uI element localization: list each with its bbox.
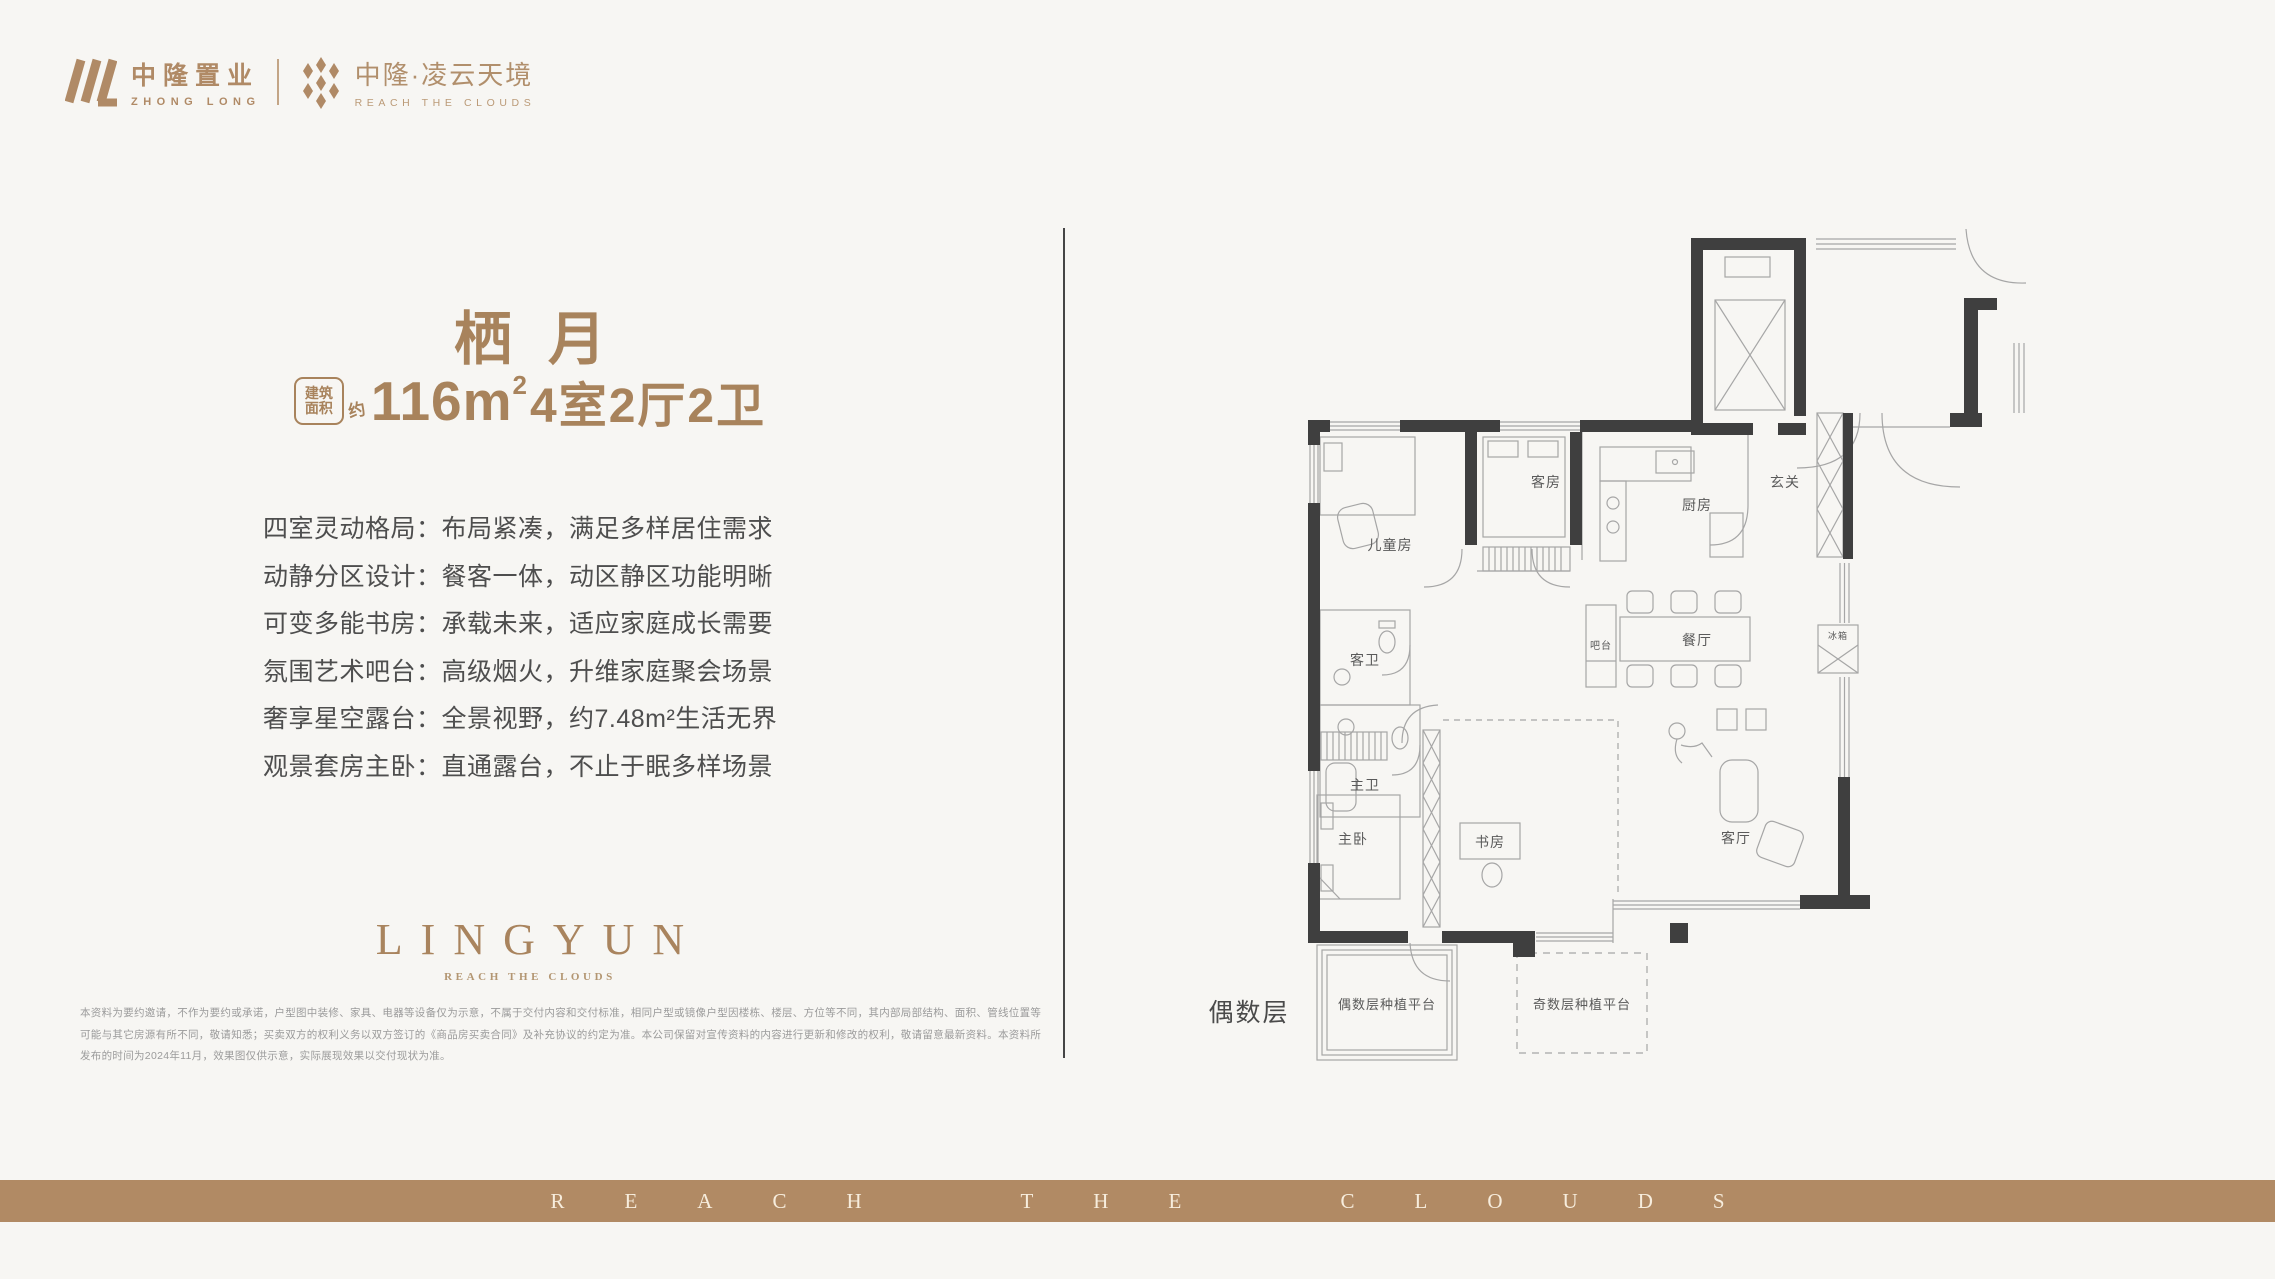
feature-line: 可变多能书房：承载未来，适应家庭成长需要	[263, 601, 823, 649]
area-badge-line2: 面积	[305, 401, 333, 416]
room-label-childrens-room: 儿童房	[1368, 537, 1413, 553]
room-label-living-room: 客厅	[1721, 830, 1751, 846]
zhonglong-logo-icon	[65, 56, 117, 108]
area-number: 116m2	[371, 369, 528, 433]
footer-banner-text: REACH THE CLOUDS	[490, 1189, 1784, 1214]
lingyun-tagline: REACH THE CLOUDS	[0, 971, 1060, 983]
feature-line: 奢享星空露台：全景视野，约7.48m²生活无界	[263, 696, 823, 744]
disclaimer-line: 可能与其它房源有所不同，敬请知悉；买卖双方的权利义务以双方签订的《商品房买卖合同…	[80, 1025, 1010, 1047]
floorplan-lines	[1310, 229, 2026, 1060]
footer-banner: REACH THE CLOUDS	[0, 1180, 2275, 1222]
disclaimer-line: 发布的时间为2024年11月，效果图仅供示意，实际展现效果以交付现状为准。	[80, 1046, 1010, 1068]
room-label-study: 书房	[1475, 834, 1505, 850]
feature-line: 氛围艺术吧台：高级烟火，升维家庭聚会场景	[263, 649, 823, 697]
feature-line: 观景套房主卧：直通露台，不止于眠多样场景	[263, 744, 823, 792]
header: 中隆置业 ZHONG LONG 中隆·凌云天境 REACH THE CLOUDS	[65, 52, 535, 112]
project-logo-icon	[301, 55, 341, 109]
header-divider	[277, 59, 279, 105]
brand-name-cn: 中隆置业	[131, 56, 261, 92]
disclaimer: 本资料为要约邀请，不作为要约或承诺，户型图中装修、家具、电器等设备仅为示意，不属…	[80, 1003, 1010, 1068]
room-label-guest-room: 客房	[1531, 474, 1561, 490]
project-name-cn: 中隆·凌云天境	[355, 55, 536, 92]
brand-name-en: ZHONG LONG	[131, 96, 261, 108]
area-approx-label: 约	[345, 394, 367, 422]
room-label-fridge: 冰箱	[1828, 630, 1848, 641]
label-odd-floor-platform: 奇数层种植平台	[1533, 997, 1631, 1012]
floorplan-drawing: 儿童房 客房 客卫 主卫 厨房 玄关 餐厅 吧台 冰箱 主卧 书房 客厅 偶数层…	[1180, 215, 2040, 1075]
unit-layout-text: 4室2厅2卫	[530, 366, 766, 436]
room-label-master-bath: 主卫	[1350, 777, 1380, 793]
unit-area-row: 建筑 面积 约 116m2 4室2厅2卫	[0, 366, 1060, 436]
label-even-floor-note: 偶数层	[1208, 999, 1289, 1027]
unit-name-title: 栖月	[0, 292, 1060, 376]
room-label-bar: 吧台	[1590, 639, 1612, 652]
area-badge-line1: 建筑	[305, 386, 333, 401]
room-label-master-bedroom: 主卧	[1338, 831, 1368, 847]
label-even-floor-platform: 偶数层种植平台	[1338, 997, 1436, 1012]
room-label-guest-bath: 客卫	[1350, 652, 1380, 668]
area-superscript: 2	[513, 370, 528, 400]
brand-block: 中隆置业 ZHONG LONG	[131, 56, 261, 108]
project-block: 中隆·凌云天境 REACH THE CLOUDS	[355, 55, 536, 109]
lingyun-wordmark: LINGYUN	[0, 914, 1060, 965]
vertical-divider	[1063, 228, 1065, 1058]
feature-line: 动静分区设计：餐客一体，动区静区功能明晰	[263, 554, 823, 602]
feature-list: 四室灵动格局：布局紧凑，满足多样居住需求 动静分区设计：餐客一体，动区静区功能明…	[263, 506, 823, 791]
page: 中隆置业 ZHONG LONG 中隆·凌云天境 REACH THE CLOUDS…	[0, 0, 2275, 1279]
room-label-dining: 餐厅	[1682, 632, 1712, 648]
lingyun-logo-block: LINGYUN REACH THE CLOUDS	[0, 914, 1060, 983]
project-name-en: REACH THE CLOUDS	[355, 97, 536, 109]
room-label-foyer: 玄关	[1770, 474, 1800, 490]
disclaimer-line: 本资料为要约邀请，不作为要约或承诺，户型图中装修、家具、电器等设备仅为示意，不属…	[80, 1003, 1010, 1025]
room-label-kitchen: 厨房	[1682, 497, 1712, 513]
feature-line: 四室灵动格局：布局紧凑，满足多样居住需求	[263, 506, 823, 554]
area-badge: 建筑 面积	[294, 377, 344, 425]
